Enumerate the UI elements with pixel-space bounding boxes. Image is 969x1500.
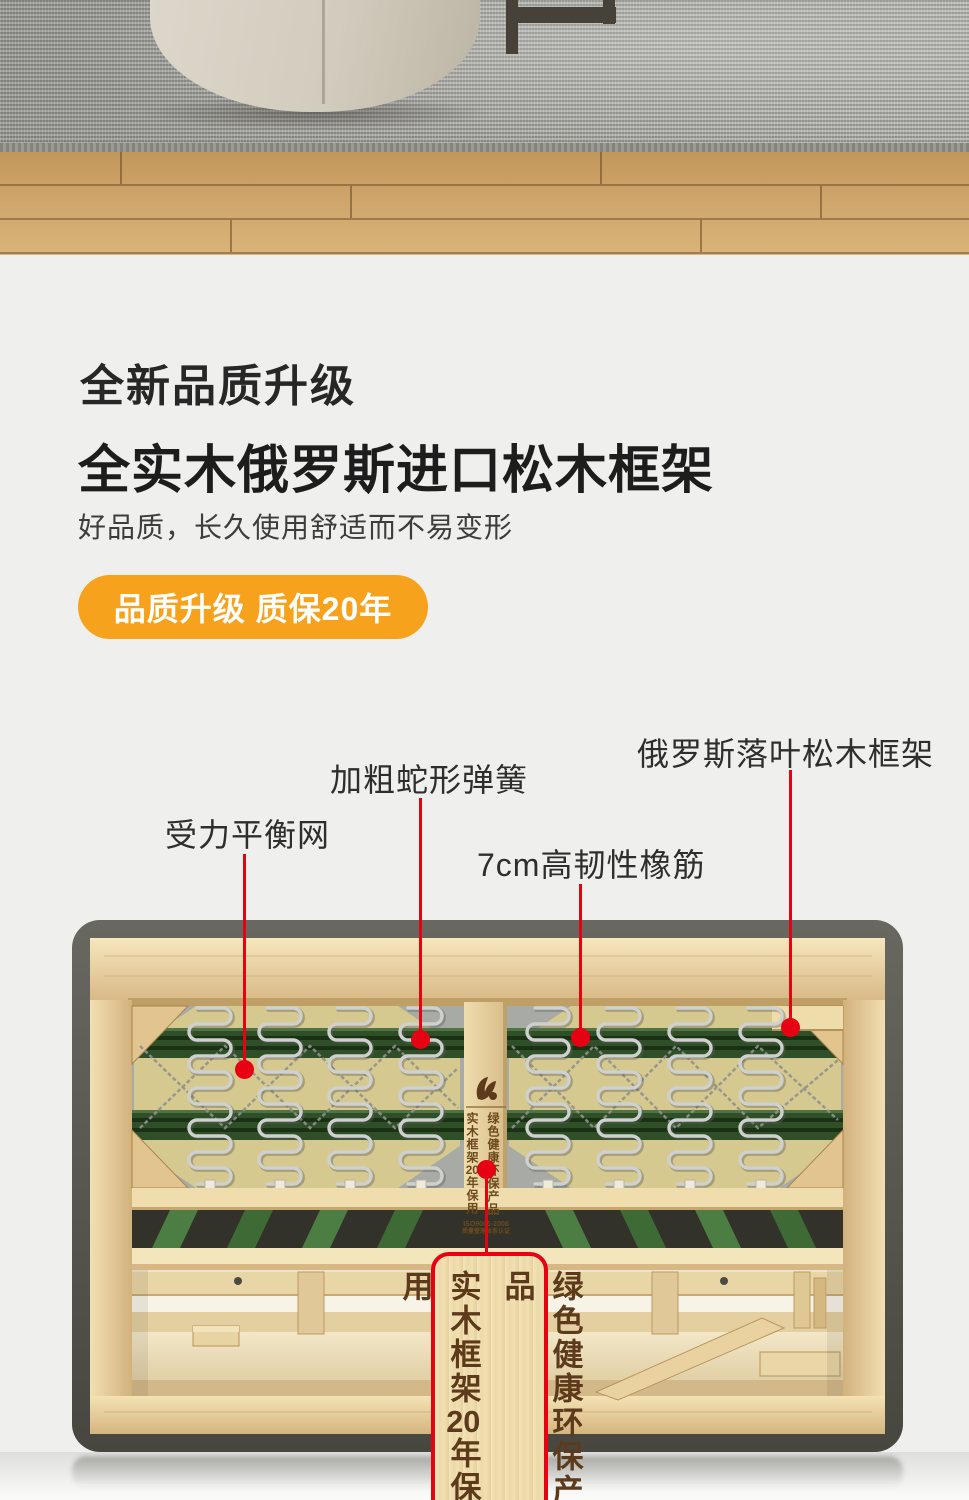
floor-seam xyxy=(820,186,822,218)
floor-seam xyxy=(700,220,702,252)
ottoman-seam xyxy=(322,0,325,104)
plaque-text-right: 绿色健康环保产品 xyxy=(493,1270,589,1500)
callout-line-balance-net xyxy=(243,854,246,1070)
callout-dot-serpentine-spring xyxy=(411,1030,430,1049)
beam-logo-icon xyxy=(468,1074,504,1104)
carpet-edge xyxy=(0,143,969,152)
beam-divider xyxy=(466,1106,506,1108)
callout-label-balance-net: 受力平衡网 xyxy=(165,810,330,856)
floor-seam xyxy=(120,152,122,184)
product-detail-page: 全新品质升级 全实木俄罗斯进口松木框架 好品质，长久使用舒适而不易变形 品质升级… xyxy=(0,0,969,1500)
callout-line-plaque xyxy=(485,1170,488,1256)
floor-seam xyxy=(350,186,352,218)
metal-leg xyxy=(603,0,615,24)
callout-dot-elastic-webbing xyxy=(571,1028,590,1047)
callout-dot-larch-frame xyxy=(781,1018,800,1037)
callout-line-larch-frame xyxy=(789,770,792,1028)
warranty-badge: 品质升级 质保20年 xyxy=(78,575,428,639)
callout-label-serpentine-spring: 加粗蛇形弹簧 xyxy=(330,755,528,801)
callout-label-elastic-webbing: 7cm高韧性橡筋 xyxy=(477,840,705,886)
floor-seam xyxy=(600,152,602,184)
warranty-plaque: 实木框架20年保用 绿色健康环保产品 xyxy=(431,1252,548,1500)
section-subtitle: 好品质，长久使用舒适而不易变形 xyxy=(78,506,513,546)
wood-floor xyxy=(0,152,969,255)
callout-dot-balance-net xyxy=(235,1060,254,1079)
section-eyebrow: 全新品质升级 xyxy=(80,350,356,414)
metal-leg xyxy=(506,7,616,23)
callout-label-larch-frame: 俄罗斯落叶松木框架 xyxy=(637,729,934,775)
section-title: 全实木俄罗斯进口松木框架 xyxy=(78,428,714,503)
plaque-text-left: 实木框架20年保用 xyxy=(391,1270,487,1500)
callout-line-serpentine-spring xyxy=(419,798,422,1040)
callout-dot-plaque xyxy=(477,1160,496,1179)
floor-seam xyxy=(230,220,232,252)
carpet xyxy=(0,0,969,150)
callout-line-elastic-webbing xyxy=(579,884,582,1038)
room-photo xyxy=(0,0,969,255)
